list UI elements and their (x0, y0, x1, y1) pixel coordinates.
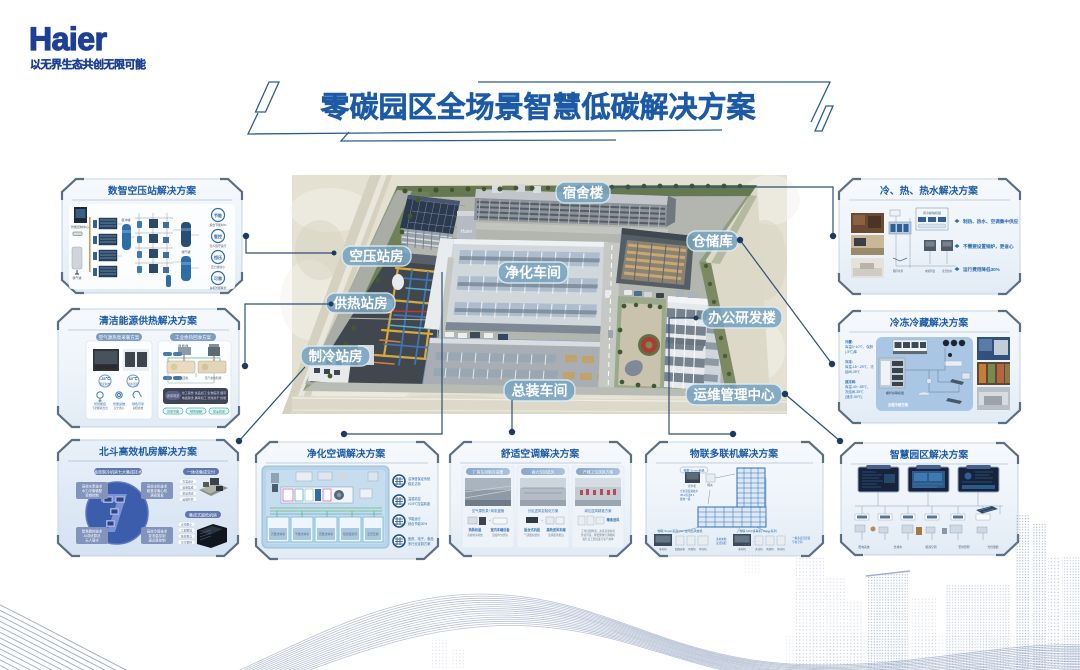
svg-text:工位局部降温，改善高温车间: 工位局部降温，改善高温车间 (581, 529, 615, 533)
svg-text:室外机: 室外机 (659, 547, 667, 551)
svg-text:灵活适配: 灵活适配 (716, 541, 727, 545)
svg-text:物联 Super系列360°全向出风嵌机: 物联 Super系列360°全向出风嵌机 (657, 528, 702, 533)
svg-text:储气罐: 储气罐 (181, 249, 190, 254)
svg-text:温度均匀舒适: 温度均匀舒适 (492, 533, 508, 537)
svg-text:全直流变频技术: 全直流变频技术 (680, 489, 699, 493)
svg-text:高大空间送风: 高大空间送风 (532, 469, 555, 474)
svg-text:清洁能源供热解决方案: 清洁能源供热解决方案 (99, 314, 197, 327)
svg-text:多机智能联控: 多机智能联控 (210, 286, 227, 290)
svg-text:冷冻冷藏解决方案: 冷冻冷藏解决方案 (890, 316, 969, 329)
svg-text:绿色低碳: 绿色低碳 (190, 409, 202, 414)
svg-text:空气源热泵+风机盘管: 空气源热泵+风机盘管 (472, 508, 505, 513)
svg-text:运维托管: 运维托管 (182, 497, 193, 501)
svg-text:宿舍楼: 宿舍楼 (563, 185, 604, 201)
svg-text:室外机: 室外机 (688, 484, 697, 488)
svg-text:绿色可靠: 绿色可靠 (132, 401, 144, 406)
svg-text:物联多联机解决方案: 物联多联机解决方案 (690, 447, 778, 460)
svg-text:高效节能: 高效节能 (167, 409, 179, 414)
svg-text:制热、热水、空调集中供应: 制热、热水、空调集中供应 (963, 218, 1019, 225)
svg-text:办公研发楼: 办公研发楼 (708, 310, 776, 326)
svg-text:设备集成: 设备集成 (182, 485, 193, 489)
svg-text:交付更快: 交付更快 (181, 540, 192, 544)
svg-text:壁挂机: 壁挂机 (699, 547, 707, 551)
svg-text:室内末端设备: 室内末端设备 (490, 527, 510, 532)
svg-text:精准送风: 精准送风 (607, 517, 621, 522)
svg-text:仓储库: 仓储库 (691, 233, 733, 249)
svg-text:电镀酸洗 屠宰加工 洗涤烘干 供暖: 电镀酸洗 屠宰加工 洗涤烘干 供暖 (182, 395, 227, 400)
svg-text:数智空压站解决方案: 数智空压站解决方案 (108, 184, 196, 197)
svg-text:组合式机组: 组合式机组 (524, 527, 541, 532)
svg-text:高效水泵技术: 高效水泵技术 (82, 484, 103, 489)
svg-text:-35℃: -35℃ (100, 376, 110, 381)
svg-text:作业环境，降低整体空调能耗: 作业环境，降低整体空调能耗 (581, 533, 615, 537)
svg-text:超低排放: 超低排放 (133, 406, 144, 410)
svg-text:冷、热、热水解决方案: 冷、热、热水解决方案 (880, 184, 978, 197)
svg-text:送风距离更远: 送风距离更远 (548, 533, 564, 537)
svg-text:库温-18~-25℃，冻: 库温-18~-25℃，冻 (845, 364, 874, 369)
svg-text:洁净度保证系统: 洁净度保证系统 (408, 476, 431, 481)
svg-text:压力波动小: 压力波动小 (211, 265, 225, 269)
svg-text:冻结间-35℃: 冻结间-35℃ (845, 389, 864, 394)
svg-text:光伏储能: 光伏储能 (987, 545, 998, 549)
svg-text:能效更高: 能效更高 (181, 534, 192, 538)
svg-text:全程冷链方案: 全程冷链方案 (887, 402, 909, 407)
svg-text:不需要设置锅炉，更省心: 不需要设置锅炉，更省心 (963, 243, 1014, 250)
svg-text:恒温恒湿间: 恒温恒湿间 (343, 532, 357, 536)
svg-text:提升员工舒适度与生产效率: 提升员工舒适度与生产效率 (582, 537, 614, 541)
svg-text:工期更短: 工期更短 (181, 528, 192, 532)
svg-text:IPLV高达8.1: IPLV高达8.1 (680, 493, 695, 497)
svg-text:安全稳定: 安全稳定 (213, 409, 225, 414)
svg-text:百级洁净室: 百级洁净室 (319, 532, 333, 536)
svg-text:正压走廊: 正压走廊 (367, 532, 378, 536)
svg-text:分区送风定制化方案: 分区送风定制化方案 (528, 508, 559, 513)
svg-text:节能运行: 节能运行 (408, 516, 422, 521)
svg-text:Haier: Haier (29, 21, 107, 57)
svg-text:医药、电子、食品: 医药、电子、食品 (408, 536, 434, 541)
svg-text:循环水泵: 循环水泵 (893, 269, 904, 273)
svg-text:热泵机组: 热泵机组 (469, 527, 483, 532)
svg-text:出水温度: 出水温度 (128, 382, 139, 386)
svg-text:Haier: Haier (461, 229, 473, 235)
svg-text:风管机: 风管机 (766, 547, 774, 551)
svg-text:生活热水: 生活热水 (942, 269, 953, 273)
svg-text:冷冻:: 冷冻: (845, 359, 853, 364)
svg-text:物联 Smart系统: 物联 Smart系统 (684, 468, 705, 473)
svg-text:四面嵌机: 四面嵌机 (675, 547, 686, 551)
svg-text:节省空间: 节省空间 (792, 540, 803, 544)
svg-text:北斗高效机房解决方案: 北斗高效机房解决方案 (99, 445, 197, 458)
svg-text:能效一级: 能效一级 (680, 497, 691, 501)
svg-text:库温0~10℃，保鲜: 库温0~10℃，保鲜 (845, 344, 874, 349)
svg-text:风管机: 风管机 (688, 547, 696, 551)
svg-text:冷藏:: 冷藏: (845, 339, 853, 344)
svg-text:±0.5℃控温精度: ±0.5℃控温精度 (408, 501, 431, 506)
svg-text:多行业定制方案: 多行业定制方案 (408, 541, 431, 546)
svg-text:冷凝热回收: 冷凝热回收 (174, 376, 188, 380)
svg-text:安全省心: 安全省心 (114, 406, 125, 410)
svg-text:综合节能30%: 综合节能30% (408, 521, 427, 526)
svg-text:占地更小: 占地更小 (181, 522, 192, 526)
svg-text:AI寻优算法: AI寻优算法 (84, 533, 101, 538)
svg-text:智慧能控: 智慧能控 (94, 401, 106, 406)
svg-text:气流组织优化: 气流组织优化 (524, 533, 540, 537)
svg-text:高效送风末端: 高效送风末端 (546, 527, 566, 532)
svg-text:螺杆并联机组: 螺杆并联机组 (886, 390, 904, 395)
svg-text:温湿精控: 温湿精控 (408, 496, 422, 501)
svg-text:蒸汽余热利用: 蒸汽余热利用 (205, 376, 222, 380)
svg-text:岗位送风精准方案: 岗位送风精准方案 (584, 508, 612, 513)
svg-text:净化空调解决方案: 净化空调解决方案 (307, 447, 386, 460)
svg-text:空压站房: 空压站房 (350, 248, 404, 264)
svg-text:智能控制中心: 智能控制中心 (71, 224, 89, 229)
svg-text:配电系统: 配电系统 (858, 545, 869, 549)
svg-text:多种末端: 多种末端 (716, 537, 727, 541)
svg-text:产线工位送风方案: 产线工位送风方案 (583, 469, 614, 474)
svg-text:舒适空调解决方案: 舒适空调解决方案 (501, 447, 580, 460)
svg-text:稳定制热: 稳定制热 (100, 382, 111, 386)
svg-text:无人值守: 无人值守 (85, 538, 99, 543)
svg-text:总装车间: 总装车间 (512, 383, 568, 399)
svg-text:以无界生态共创无限可能: 以无界生态共创无限可能 (30, 57, 146, 71)
svg-text:节约能耗支出: 节约能耗支出 (92, 406, 108, 410)
svg-text:逼近度控制: 逼近度控制 (149, 538, 167, 543)
svg-text:风冷模块机组: 风冷模块机组 (923, 210, 941, 215)
svg-text:千级洁净室: 千级洁净室 (295, 532, 309, 536)
svg-text:节能: 节能 (214, 212, 222, 218)
svg-text:安装调试: 安装调试 (182, 491, 193, 495)
svg-text:运维管理中心: 运维管理中心 (694, 387, 775, 403)
svg-text:制冷站房: 制冷站房 (309, 348, 363, 364)
svg-text:储气罐: 储气罐 (72, 275, 81, 280)
svg-text:(速冻-50℃): (速冻-50℃) (845, 394, 862, 399)
svg-text:一拖多灵活安装: 一拖多灵活安装 (792, 536, 811, 540)
svg-text:供热站房: 供热站房 (333, 295, 388, 311)
svg-text:运行费用降低30%: 运行费用降低30% (963, 266, 1000, 273)
svg-text:智慧园区解决方案: 智慧园区解决方案 (890, 448, 969, 461)
svg-text:速冻间:: 速冻间: (845, 379, 856, 384)
svg-text:结间-35℃: 结间-35℃ (845, 369, 861, 374)
svg-text:高效制冷制热: 高效制冷制热 (467, 533, 483, 537)
svg-text:可靠: 可靠 (214, 275, 222, 281)
svg-text:变流量控制: 变流量控制 (149, 533, 167, 538)
svg-text:末端风盘: 末端风盘 (925, 269, 936, 273)
svg-text:无人值守运行: 无人值守运行 (210, 244, 227, 248)
svg-text:厂房车间制冷采暖: 厂房车间制冷采暖 (473, 469, 504, 474)
svg-text:空气源热泵采暖方案: 空气源热泵采暖方案 (99, 334, 140, 341)
svg-text:磁悬浮离心机: 磁悬浮离心机 (147, 488, 168, 493)
svg-text:适用场景: 适用场景 (167, 393, 180, 398)
svg-text:智慧群控技术: 智慧群控技术 (82, 529, 103, 534)
svg-text:变频控制: 变频控制 (85, 493, 99, 498)
svg-text:+: + (541, 519, 543, 523)
svg-text:方案设计: 方案设计 (182, 479, 193, 483)
svg-text:一体化集成交付: 一体化集成交付 (187, 468, 215, 474)
svg-text:稳定达标: 稳定达标 (408, 481, 422, 486)
svg-text:恒压: 恒压 (214, 254, 222, 260)
svg-text:化工染整 食品加工 生物医药 烟草: 化工染整 食品加工 生物医药 烟草 (182, 390, 227, 395)
svg-text:给排水: 给排水 (894, 545, 903, 549)
svg-text:智控: 智控 (214, 233, 222, 239)
svg-text:+: + (489, 519, 491, 523)
svg-text:高效主机技术: 高效主机技术 (147, 484, 168, 489)
svg-text:壁挂机: 壁挂机 (777, 547, 785, 551)
svg-text:智能运维: 智能运维 (113, 401, 125, 406)
svg-text:集成式超低机房: 集成式超低机房 (189, 511, 217, 517)
svg-text:净化车间: 净化车间 (505, 265, 561, 281)
svg-text:满液蒸发: 满液蒸发 (150, 493, 164, 498)
svg-text:高效制冷机房七大集成技术: 高效制冷机房七大集成技术 (94, 468, 142, 474)
svg-text:工业余热回收方案: 工业余热回收方案 (175, 334, 211, 341)
svg-text:综合节能30%: 综合节能30% (210, 223, 227, 227)
svg-text:暖通空调: 暖通空调 (925, 545, 936, 549)
svg-text:网关: 网关 (707, 483, 713, 487)
svg-text:万级洁净室: 万级洁净室 (271, 532, 285, 536)
svg-text:高效冷塔技术: 高效冷塔技术 (147, 529, 168, 534)
svg-text:物联 MAX多联机 Super系列: 物联 MAX多联机 Super系列 (739, 528, 776, 533)
svg-text:安防照明: 安防照明 (958, 545, 969, 549)
svg-text:60℃: 60℃ (129, 376, 138, 381)
svg-text:(-5℃)库: (-5℃)库 (845, 349, 858, 354)
svg-text:水力平衡输配: 水力平衡输配 (82, 488, 103, 493)
svg-text:库温-40~-55℃，: 库温-40~-55℃， (845, 384, 870, 389)
svg-text:缓冲罐: 缓冲罐 (121, 217, 130, 222)
svg-text:零碳园区全场景智慧低碳解决方案: 零碳园区全场景智慧低碳解决方案 (320, 90, 756, 124)
